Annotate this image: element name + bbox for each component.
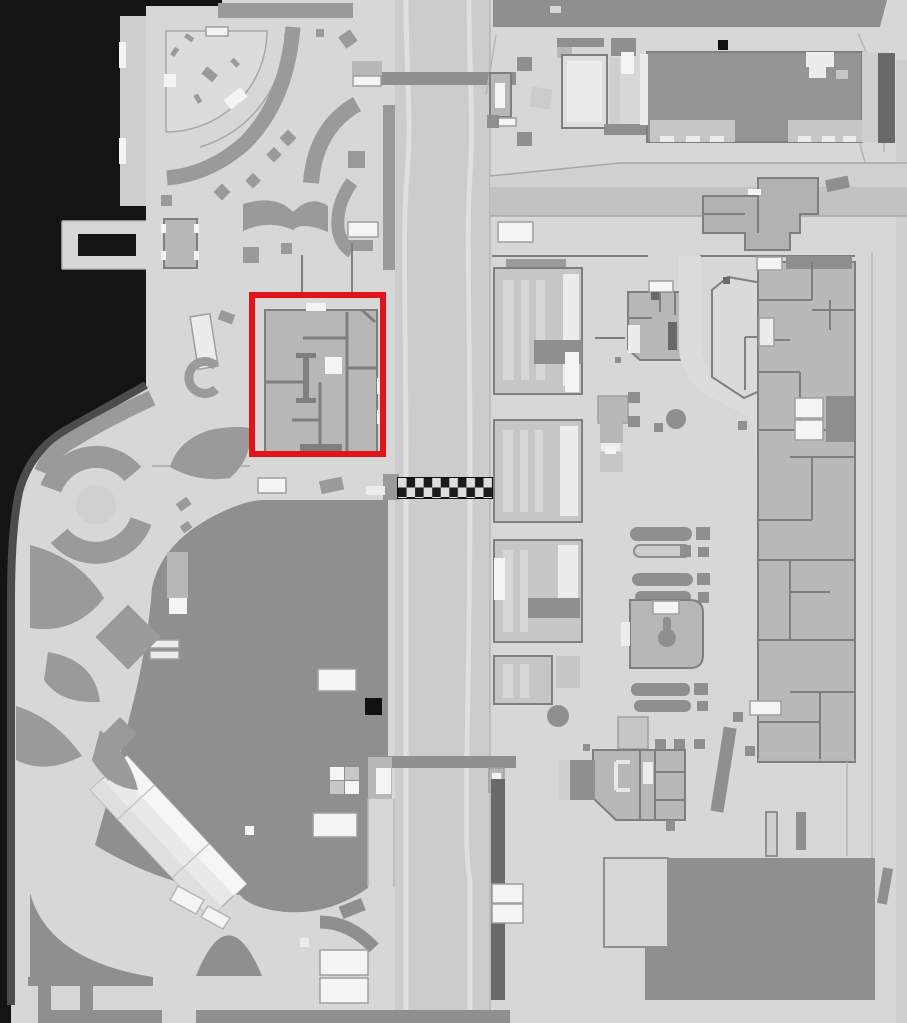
plaza-marker (365, 698, 382, 715)
pier-inlet (78, 234, 136, 256)
boardwalk (119, 16, 146, 206)
north-wall-band (493, 0, 887, 27)
map-canvas[interactable] (0, 0, 907, 1023)
tree (666, 409, 686, 429)
shelf-cluster-a (494, 259, 582, 394)
hall-marker (718, 40, 728, 50)
finish-line-marker (366, 474, 492, 500)
park-building (161, 219, 199, 268)
shelf-cluster-b (494, 420, 582, 522)
vehicle (258, 478, 286, 493)
city-map (0, 0, 907, 1023)
hedge-strip (383, 105, 395, 270)
bus-shelter (487, 73, 516, 128)
objective-building[interactable] (265, 303, 385, 453)
right-wing-rooms (757, 256, 855, 762)
kiosk-room (621, 600, 703, 668)
fountain (76, 485, 116, 525)
warehouse-hall (640, 40, 895, 143)
central-road (395, 0, 490, 1023)
shelf-cluster-c (494, 540, 582, 642)
cross-street (490, 163, 907, 216)
